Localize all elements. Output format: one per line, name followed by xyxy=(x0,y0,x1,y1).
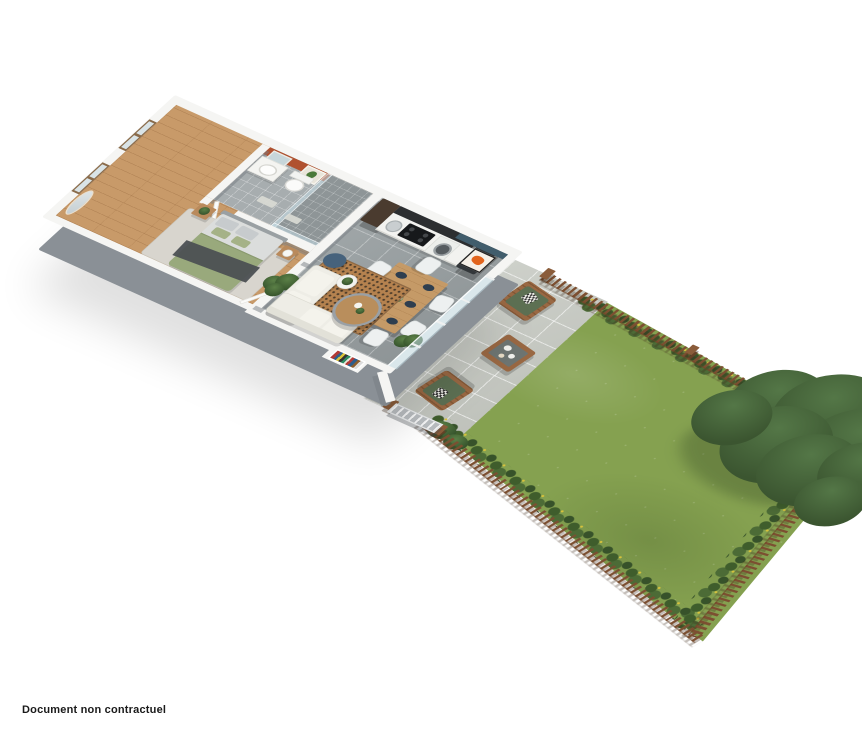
bedside-lamp xyxy=(280,248,295,258)
sink-basin xyxy=(255,162,280,178)
burner xyxy=(408,227,416,232)
plate xyxy=(393,270,409,280)
potted-plant xyxy=(196,206,212,217)
table-plant xyxy=(339,276,355,287)
plate xyxy=(421,283,437,293)
floorplan-render: Document non contractuel xyxy=(0,0,862,733)
burner xyxy=(416,238,424,243)
plate xyxy=(402,299,418,309)
artwork-swoosh-motif xyxy=(470,254,486,267)
plate xyxy=(384,316,400,326)
burner xyxy=(403,231,411,236)
disclaimer-caption: Document non contractuel xyxy=(22,704,166,716)
burner xyxy=(422,233,430,238)
